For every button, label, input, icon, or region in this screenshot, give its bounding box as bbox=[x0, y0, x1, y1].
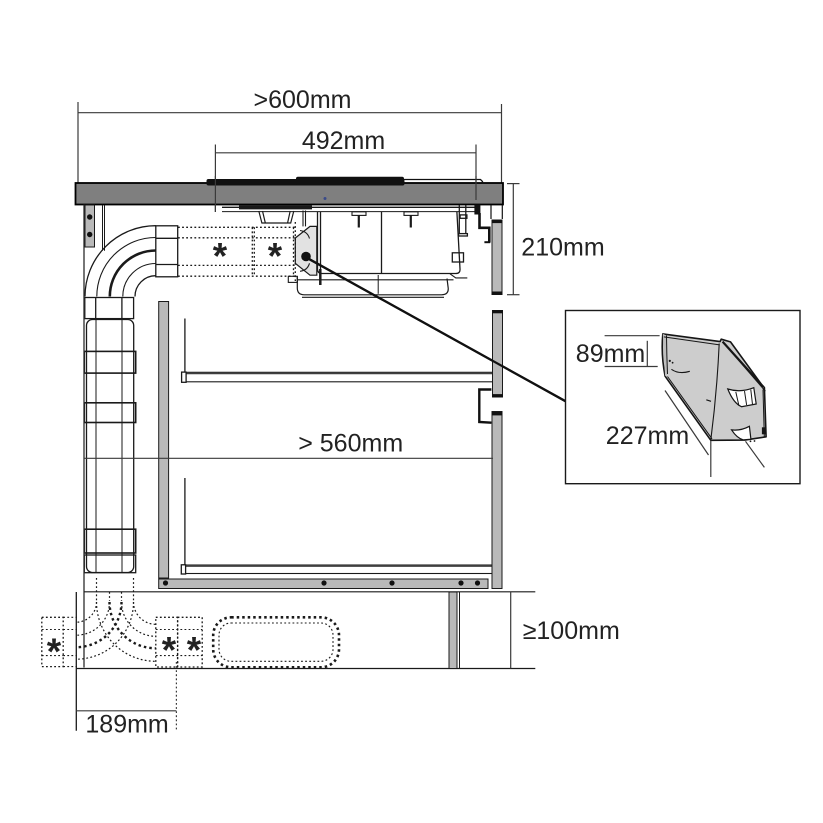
svg-text:*: * bbox=[187, 630, 202, 671]
svg-text:492mm: 492mm bbox=[302, 127, 385, 155]
svg-text:210mm: 210mm bbox=[521, 233, 604, 261]
svg-text:*: * bbox=[268, 236, 283, 277]
svg-text:*: * bbox=[162, 630, 177, 671]
svg-text:227mm: 227mm bbox=[606, 422, 689, 450]
svg-text:≥100mm: ≥100mm bbox=[523, 617, 620, 645]
svg-text:*: * bbox=[47, 631, 62, 672]
svg-text:189mm: 189mm bbox=[85, 711, 168, 739]
svg-text:>600mm: >600mm bbox=[254, 86, 352, 114]
svg-text:*: * bbox=[213, 236, 228, 277]
svg-text:89mm: 89mm bbox=[576, 340, 645, 368]
svg-text:> 560mm: > 560mm bbox=[298, 430, 403, 458]
